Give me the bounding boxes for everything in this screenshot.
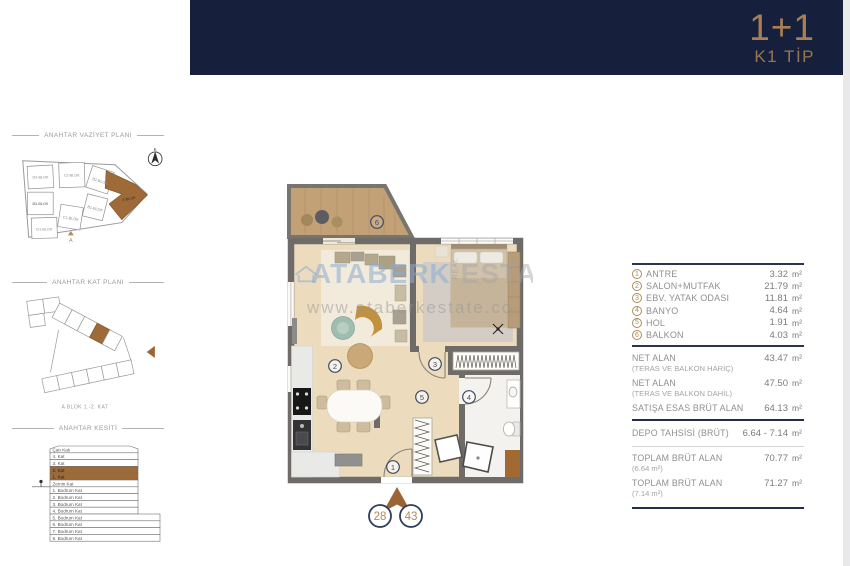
bench	[335, 454, 362, 466]
compass-icon: K	[148, 147, 162, 166]
plant-pot	[301, 214, 313, 226]
room-marker: 4	[463, 391, 476, 404]
summary-sub: (TERAS VE BALKON DAHİL)	[632, 389, 750, 398]
room-name: BANYO	[646, 306, 750, 316]
site-entrance-marker: A	[68, 231, 74, 244]
summary-row: NET ALAN (TERAS VE BALKON HARİÇ) 43.47 m…	[632, 353, 804, 373]
title-line	[12, 135, 39, 136]
title-line	[12, 428, 54, 429]
room-name: SALON+MUTFAK	[646, 281, 750, 291]
title-line	[122, 428, 164, 429]
table-row: 5 HOL 1.91 m²	[632, 317, 804, 329]
section-figure: Çatı Katı 4. Kat 3. Kat 2. Kat 1. Kat Ze…	[12, 438, 164, 550]
key-plan-figure: A BLOK 1.-2. KAT	[12, 291, 164, 419]
room-marker: 5	[416, 391, 429, 404]
areas-panel: 1 ANTRE 3.32 m² 2 SALON+MUTFAK 21.79 m² …	[632, 263, 804, 509]
room-area-value: 1.91	[750, 317, 788, 328]
room-area-value: 4.03	[750, 330, 788, 341]
room-marker-label: 3	[433, 360, 437, 369]
area-unit: m²	[788, 330, 804, 340]
block-label: D1-BLOK	[36, 227, 52, 231]
summary-value: 47.50	[750, 378, 788, 389]
gross-total-block: TOPLAM BRÜT ALAN (6.64 m²) 70.77 m² TOPL…	[632, 447, 804, 509]
table-row: 4 BANYO 4.64 m²	[632, 305, 804, 317]
area-unit: m²	[788, 353, 804, 363]
room-marker: 3	[429, 358, 442, 371]
floor-label: 2. Bodrum Kat	[53, 495, 83, 500]
balcony	[289, 186, 412, 237]
floor-label: 7. Bodrum Kat	[53, 529, 83, 534]
room-area-value: 4.64	[750, 305, 788, 316]
area-unit: m²	[788, 478, 804, 488]
floor-label: Çatı Katı	[53, 448, 71, 453]
room-name: BALKON	[646, 330, 750, 340]
closet-hatched	[453, 352, 519, 370]
room-marker: 2	[329, 360, 342, 373]
unit-number-label: 43	[405, 511, 418, 523]
tv	[292, 318, 297, 344]
summary-value: 70.77	[750, 453, 788, 464]
table-row: 6 BALKON 4.03 m²	[632, 329, 804, 341]
floor-plan-area: 1 2 3 4 5	[283, 170, 533, 530]
area-unit: m²	[788, 453, 804, 463]
block-label: D2-BLOK	[32, 202, 48, 206]
summary-name: TOPLAM BRÜT ALAN	[632, 453, 750, 463]
summary-row: TOPLAM BRÜT ALAN (7.14 m²) 71.27 m²	[632, 478, 804, 498]
floor-label: 4. Kat	[53, 454, 66, 459]
room-marker-label: 4	[467, 393, 471, 402]
room-number-badge: 4	[632, 306, 642, 316]
area-unit: m²	[788, 281, 804, 291]
key-plan-title-text: ANAHTAR KAT PLANI	[52, 279, 124, 286]
area-unit: m²	[788, 403, 804, 413]
north-label: K	[154, 147, 157, 152]
title-line	[12, 282, 47, 283]
bath-cabinet	[505, 450, 520, 477]
summary-name: SATIŞA ESAS BRÜT ALAN	[632, 403, 750, 413]
summary-value: 71.27	[750, 478, 788, 489]
plan-sheet-page: 1+1 K1 TİP ANAHTAR VAZİYET PLANI D3-BLOK…	[0, 0, 850, 566]
room-number-badge: 1	[632, 269, 642, 279]
header: 1+1 K1 TİP	[190, 0, 843, 75]
summary-name: NET ALAN	[632, 353, 750, 363]
summary-name: NET ALAN	[632, 378, 750, 388]
site-plan-figure: D3-BLOK C2-BLOK B2-BLOK B1-BLOK B1-BLOK …	[12, 144, 164, 258]
summary-row: DEPO TAHSİSİ (BRÜT) 6.64 - 7.14 m²	[632, 428, 804, 439]
room-name: ANTRE	[646, 269, 750, 279]
area-unit: m²	[788, 378, 804, 388]
section-title: ANAHTAR KESİTİ	[12, 425, 164, 432]
summary-row: NET ALAN (TERAS VE BALKON DAHİL) 47.50 m…	[632, 378, 804, 398]
bedroom-wardrobe	[508, 252, 520, 328]
nightstand	[435, 246, 448, 257]
unit-number-label: 28	[374, 511, 387, 523]
area-unit: m²	[788, 269, 804, 279]
coffee-table	[348, 344, 373, 369]
room-number-badge: 2	[632, 281, 642, 291]
room-area-value: 21.79	[750, 281, 788, 292]
key-plan-arrow-icon	[147, 346, 155, 358]
key-plan-caption: A BLOK 1.-2. KAT	[62, 405, 109, 411]
area-unit: m²	[788, 428, 804, 438]
summary-row: SATIŞA ESAS BRÜT ALAN 64.13 m²	[632, 403, 804, 414]
floor-label: 6. Bodrum Kat	[53, 522, 83, 527]
floor-label: 3. Kat	[53, 461, 66, 466]
depo-block: DEPO TAHSİSİ (BRÜT) 6.64 - 7.14 m²	[632, 421, 804, 447]
area-unit: m²	[788, 318, 804, 328]
plant-pot	[332, 217, 343, 228]
summary-value: 64.13	[750, 403, 788, 414]
person-icon	[40, 480, 43, 486]
entrance-marker-label: A	[69, 238, 73, 244]
summary-name: DEPO TAHSİSİ (BRÜT)	[632, 428, 736, 438]
room-number-badge: 6	[632, 330, 642, 340]
site-plan-title: ANAHTAR VAZİYET PLANI	[12, 132, 164, 139]
summary-value: 6.64 - 7.14	[736, 428, 788, 439]
room-area-value: 11.81	[750, 293, 788, 304]
plan-code-label: K1 TİP	[754, 47, 815, 67]
floor-label: Zemin Kat	[53, 481, 75, 486]
summary-name: TOPLAM BRÜT ALAN	[632, 478, 750, 488]
toilet	[504, 422, 515, 436]
title-line	[129, 282, 164, 283]
floor-label: 1. Bodrum Kat	[53, 488, 83, 493]
room-marker: 1	[387, 461, 400, 474]
key-plan-units	[27, 297, 134, 393]
summary-sub: (TERAS VE BALKON HARİÇ)	[632, 364, 750, 373]
room-number-badge: 3	[632, 293, 642, 303]
page-edge-strip	[843, 0, 850, 566]
room-marker-label: 5	[420, 393, 424, 402]
stove	[293, 388, 311, 415]
room-number-badge: 5	[632, 318, 642, 328]
room-marker-label: 6	[375, 218, 379, 227]
title-line	[137, 135, 164, 136]
unit-number-badge: 28	[369, 505, 391, 527]
table-row: 2 SALON+MUTFAK 21.79 m²	[632, 280, 804, 292]
key-plan-title: ANAHTAR KAT PLANI	[12, 279, 164, 286]
net-areas-block: NET ALAN (TERAS VE BALKON HARİÇ) 43.47 m…	[632, 347, 804, 421]
entry-closet-hatched	[413, 418, 432, 475]
unit-type-label: 1+1	[749, 9, 815, 46]
floor-label: 5. Bodrum Kat	[53, 515, 83, 520]
room-marker: 6	[371, 216, 384, 229]
summary-value: 43.47	[750, 353, 788, 364]
dining-table	[327, 390, 382, 422]
floor-plan-figure: 1 2 3 4 5	[283, 170, 533, 530]
block-label: C2-BLOK	[64, 173, 80, 177]
room-list: 1 ANTRE 3.32 m² 2 SALON+MUTFAK 21.79 m² …	[632, 263, 804, 347]
a-blok-shape	[105, 171, 147, 220]
pillow	[454, 252, 477, 263]
floor-label: 4. Bodrum Kat	[53, 509, 83, 514]
table-row: 3 EBV. YATAK ODASI 11.81 m²	[632, 292, 804, 304]
table-row: 1 ANTRE 3.32 m²	[632, 268, 804, 280]
unit-number-badge: 43	[400, 505, 422, 527]
sofa	[335, 252, 350, 263]
summary-row: TOPLAM BRÜT ALAN (6.64 m²) 70.77 m²	[632, 453, 804, 473]
shoe-cabinet	[435, 435, 462, 462]
floor-label: 1. Kat	[53, 475, 66, 480]
room-marker-label: 1	[391, 463, 395, 472]
room-name: HOL	[646, 318, 750, 328]
section-title-text: ANAHTAR KESİTİ	[59, 425, 118, 432]
site-plan-title-text: ANAHTAR VAZİYET PLANI	[44, 132, 132, 139]
floor-label: 3. Bodrum Kat	[53, 502, 83, 507]
floor-label: 8. Bodrum Kat	[53, 536, 83, 541]
room-marker-label: 2	[333, 362, 337, 371]
area-unit: m²	[788, 306, 804, 316]
floor-label: 2. Kat	[53, 468, 66, 473]
summary-sub: (6.64 m²)	[632, 464, 750, 473]
plant-pot	[315, 210, 329, 224]
area-unit: m²	[788, 293, 804, 303]
room-name: EBV. YATAK ODASI	[646, 293, 750, 303]
pillow	[480, 252, 503, 263]
room-area-value: 3.32	[750, 269, 788, 280]
block-label: D3-BLOK	[32, 175, 48, 179]
summary-sub: (7.14 m²)	[632, 489, 750, 498]
